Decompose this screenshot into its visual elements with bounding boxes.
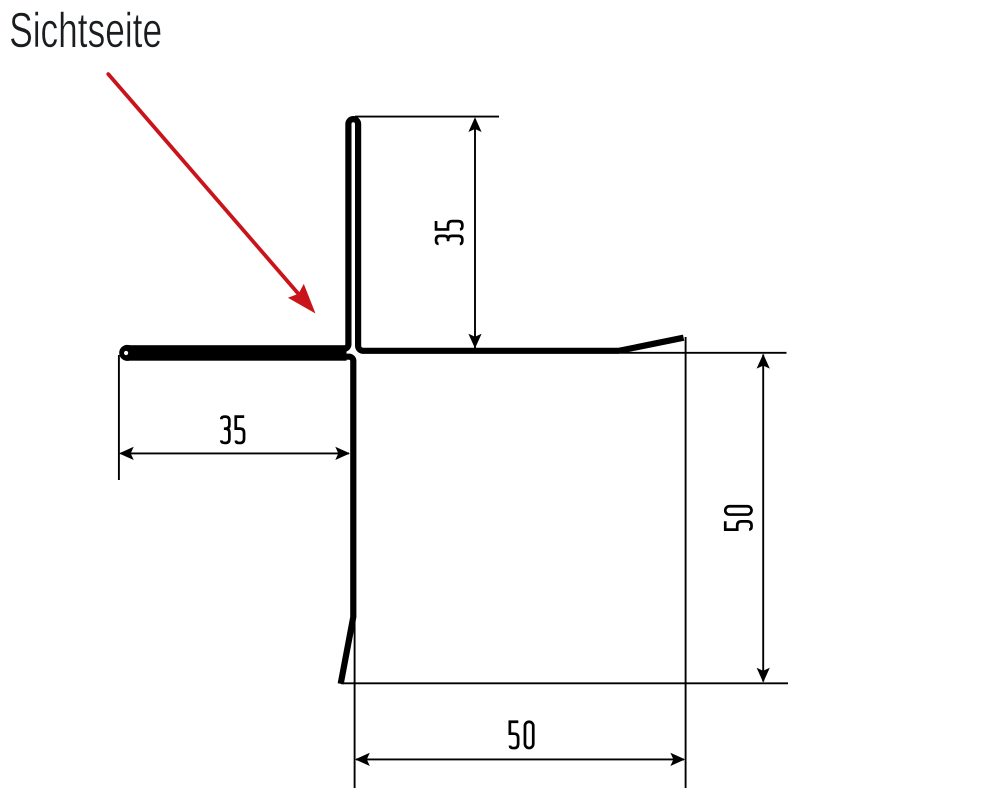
svg-text:Sichtseite: Sichtseite bbox=[9, 3, 162, 58]
